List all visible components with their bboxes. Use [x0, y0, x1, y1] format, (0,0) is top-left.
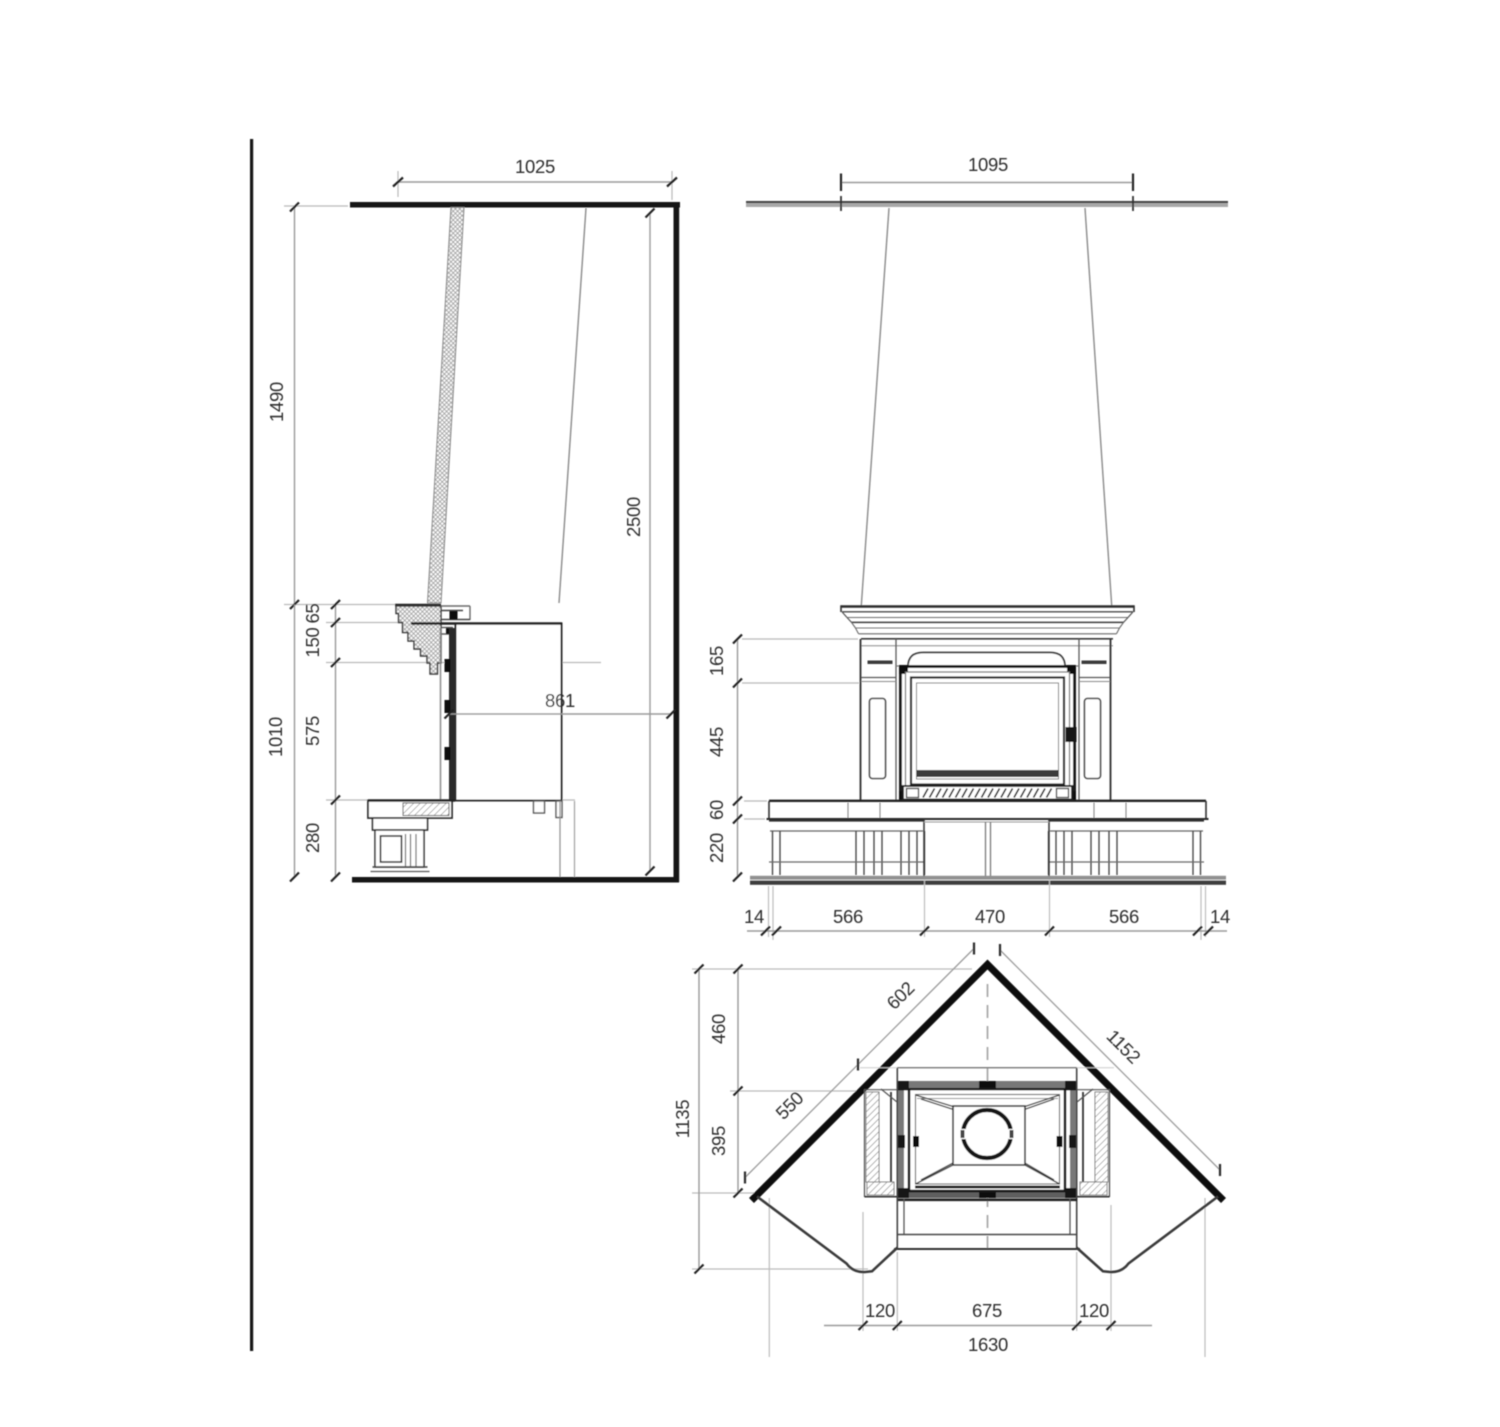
svg-text:1630: 1630	[968, 1334, 1008, 1355]
svg-text:395: 395	[708, 1126, 729, 1156]
svg-text:14: 14	[1210, 906, 1230, 927]
svg-text:165: 165	[706, 646, 727, 676]
svg-text:460: 460	[708, 1014, 729, 1044]
svg-text:470: 470	[975, 906, 1005, 927]
svg-text:220: 220	[706, 833, 727, 863]
svg-text:1095: 1095	[968, 154, 1008, 175]
svg-text:1135: 1135	[672, 1100, 693, 1139]
svg-text:14: 14	[744, 906, 764, 927]
svg-text:120: 120	[1079, 1300, 1109, 1321]
svg-text:1010: 1010	[265, 717, 286, 757]
svg-text:1490: 1490	[266, 382, 287, 422]
svg-text:675: 675	[972, 1300, 1002, 1321]
svg-text:60: 60	[706, 800, 727, 820]
svg-text:445: 445	[706, 727, 727, 757]
svg-text:1025: 1025	[515, 156, 555, 177]
svg-text:861: 861	[545, 690, 575, 711]
svg-text:65: 65	[302, 604, 323, 624]
svg-text:2500: 2500	[623, 497, 644, 537]
svg-text:575: 575	[302, 716, 323, 746]
svg-text:566: 566	[833, 906, 863, 927]
svg-text:280: 280	[302, 823, 323, 853]
svg-text:566: 566	[1109, 906, 1139, 927]
svg-text:120: 120	[865, 1300, 895, 1321]
svg-text:150: 150	[302, 628, 323, 658]
